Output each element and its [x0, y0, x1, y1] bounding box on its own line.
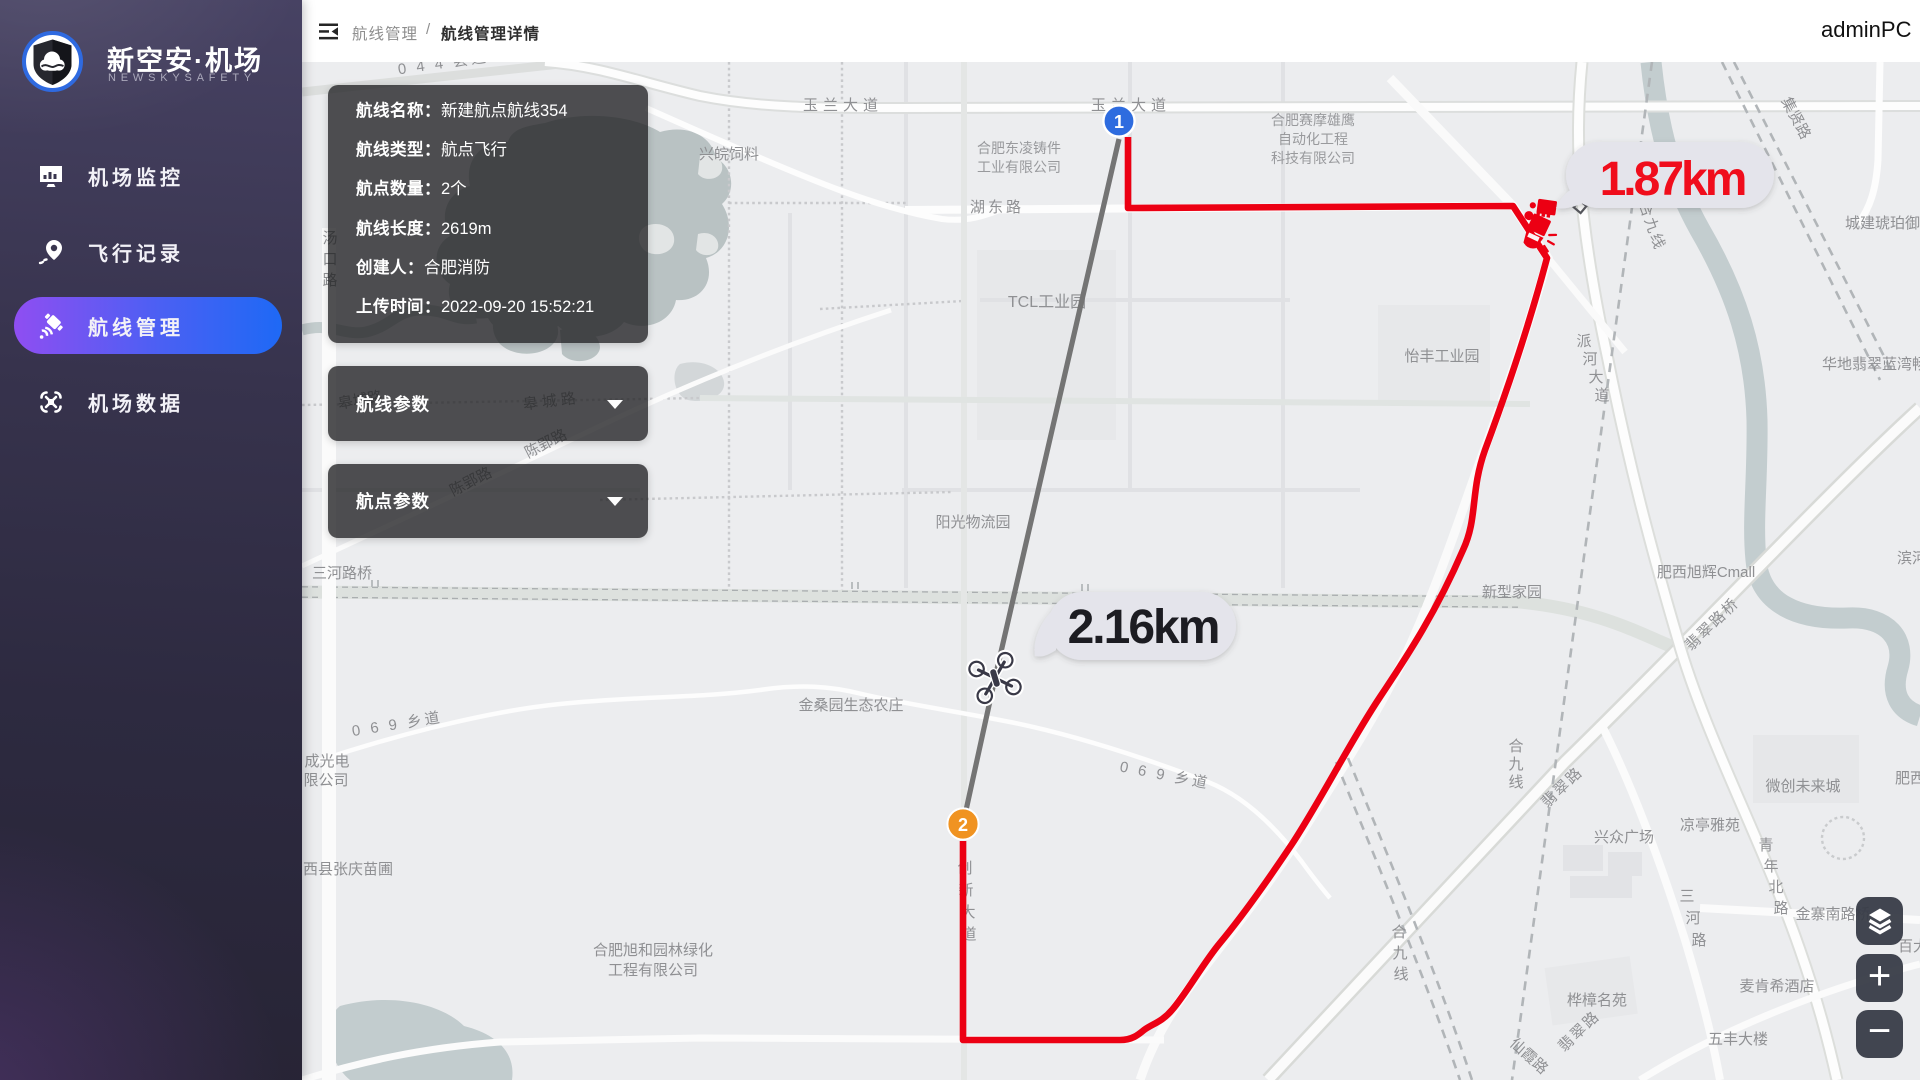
svg-text:2: 2	[958, 815, 968, 835]
svg-text:百大: 百大	[1898, 938, 1920, 955]
svg-text:派: 派	[1576, 333, 1591, 350]
svg-text:肥西旭辉Cmall: 肥西旭辉Cmall	[1657, 564, 1755, 581]
svg-text:线: 线	[1393, 966, 1408, 983]
svg-text:合肥旭和园林绿化: 合肥旭和园林绿化	[593, 942, 713, 959]
svg-text:河: 河	[1685, 910, 1700, 927]
svg-text:青: 青	[1758, 837, 1773, 854]
svg-text:限公司: 限公司	[303, 772, 348, 789]
svg-text:科技有限公司: 科技有限公司	[1271, 150, 1355, 166]
svg-text:工业有限公司: 工业有限公司	[977, 159, 1061, 175]
svg-text:自动化工程: 自动化工程	[1278, 131, 1348, 147]
svg-text:1: 1	[1114, 112, 1124, 132]
svg-text:路: 路	[1691, 932, 1706, 949]
svg-text:肥西: 肥西	[1895, 770, 1920, 787]
svg-text:成光电: 成光电	[304, 753, 349, 770]
svg-text:工程有限公司: 工程有限公司	[608, 962, 698, 979]
svg-text:麦肯希酒店: 麦肯希酒店	[1739, 978, 1814, 995]
svg-text:西县张庆苗圃: 西县张庆苗圃	[303, 861, 393, 878]
svg-text:五丰大楼: 五丰大楼	[1708, 1031, 1768, 1048]
svg-text:湖东路: 湖东路	[970, 199, 1024, 216]
svg-text:三河路桥: 三河路桥	[312, 565, 372, 582]
svg-text:合: 合	[1391, 924, 1406, 941]
svg-text:合肥赛摩雄鹰: 合肥赛摩雄鹰	[1271, 112, 1355, 128]
svg-text:九: 九	[1508, 756, 1523, 773]
svg-text:道: 道	[1594, 387, 1609, 404]
svg-text:TCL工业园: TCL工业园	[1008, 293, 1086, 311]
svg-text:金桑园生态农庄: 金桑园生态农庄	[798, 696, 903, 714]
svg-text:1.87km: 1.87km	[1600, 153, 1745, 206]
svg-text:微创未来城: 微创未来城	[1765, 778, 1840, 795]
svg-text:年: 年	[1763, 858, 1778, 875]
svg-text:路: 路	[1773, 900, 1788, 917]
svg-text:三: 三	[1679, 888, 1694, 905]
svg-text:新型家园: 新型家园	[1482, 584, 1542, 601]
svg-text:玉兰大道: 玉兰大道	[803, 97, 883, 114]
svg-text:合肥东凌铸件: 合肥东凌铸件	[977, 140, 1061, 156]
svg-text:兴众广场: 兴众广场	[1594, 829, 1654, 846]
svg-text:大: 大	[1588, 369, 1603, 386]
svg-text:桦樟名苑: 桦樟名苑	[1567, 991, 1627, 1009]
svg-text:河: 河	[1582, 351, 1597, 368]
svg-text:华地翡翠蓝湾畅: 华地翡翠蓝湾畅	[1822, 356, 1920, 373]
svg-text:怡丰工业园: 怡丰工业园	[1404, 348, 1479, 365]
svg-text:凉亭雅苑: 凉亭雅苑	[1680, 816, 1740, 834]
svg-text:合: 合	[1508, 738, 1523, 755]
svg-text:2.16km: 2.16km	[1068, 601, 1219, 654]
svg-text:北: 北	[1768, 879, 1783, 896]
svg-text:线: 线	[1508, 774, 1523, 791]
svg-text:兴皖饲料: 兴皖饲料	[699, 146, 759, 163]
svg-text:城建琥珀御苑: 城建琥珀御苑	[1845, 215, 1920, 232]
svg-text:九: 九	[1392, 945, 1407, 962]
svg-text:滨河公园: 滨河公园	[1897, 550, 1920, 567]
svg-text:阳光物流园: 阳光物流园	[935, 514, 1010, 531]
